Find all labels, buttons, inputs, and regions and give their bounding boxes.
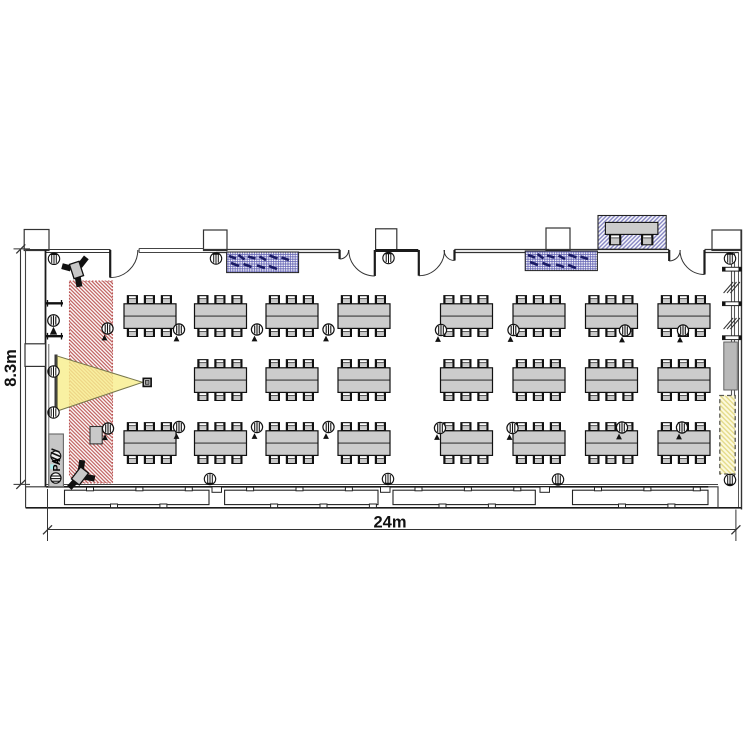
svg-text:8.3m: 8.3m [2,349,20,387]
svg-text:PA: PA [51,457,63,471]
svg-text:24m: 24m [373,514,406,532]
